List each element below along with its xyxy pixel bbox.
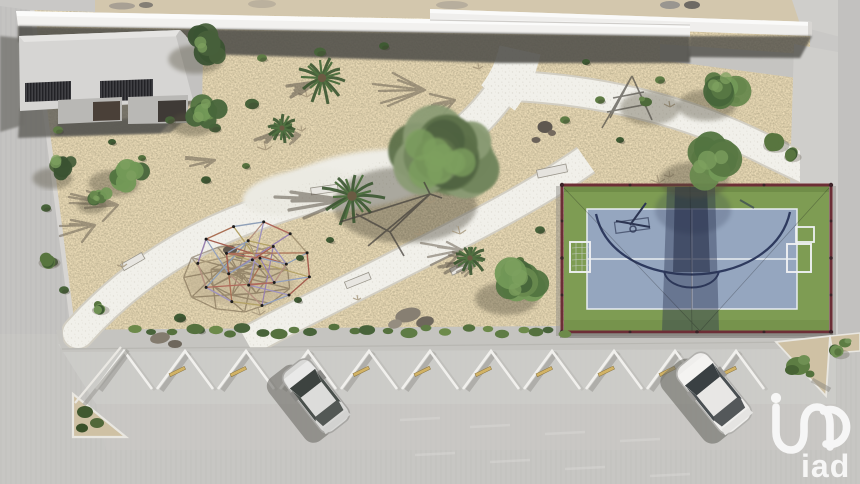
svg-text:iad: iad [801, 448, 850, 484]
